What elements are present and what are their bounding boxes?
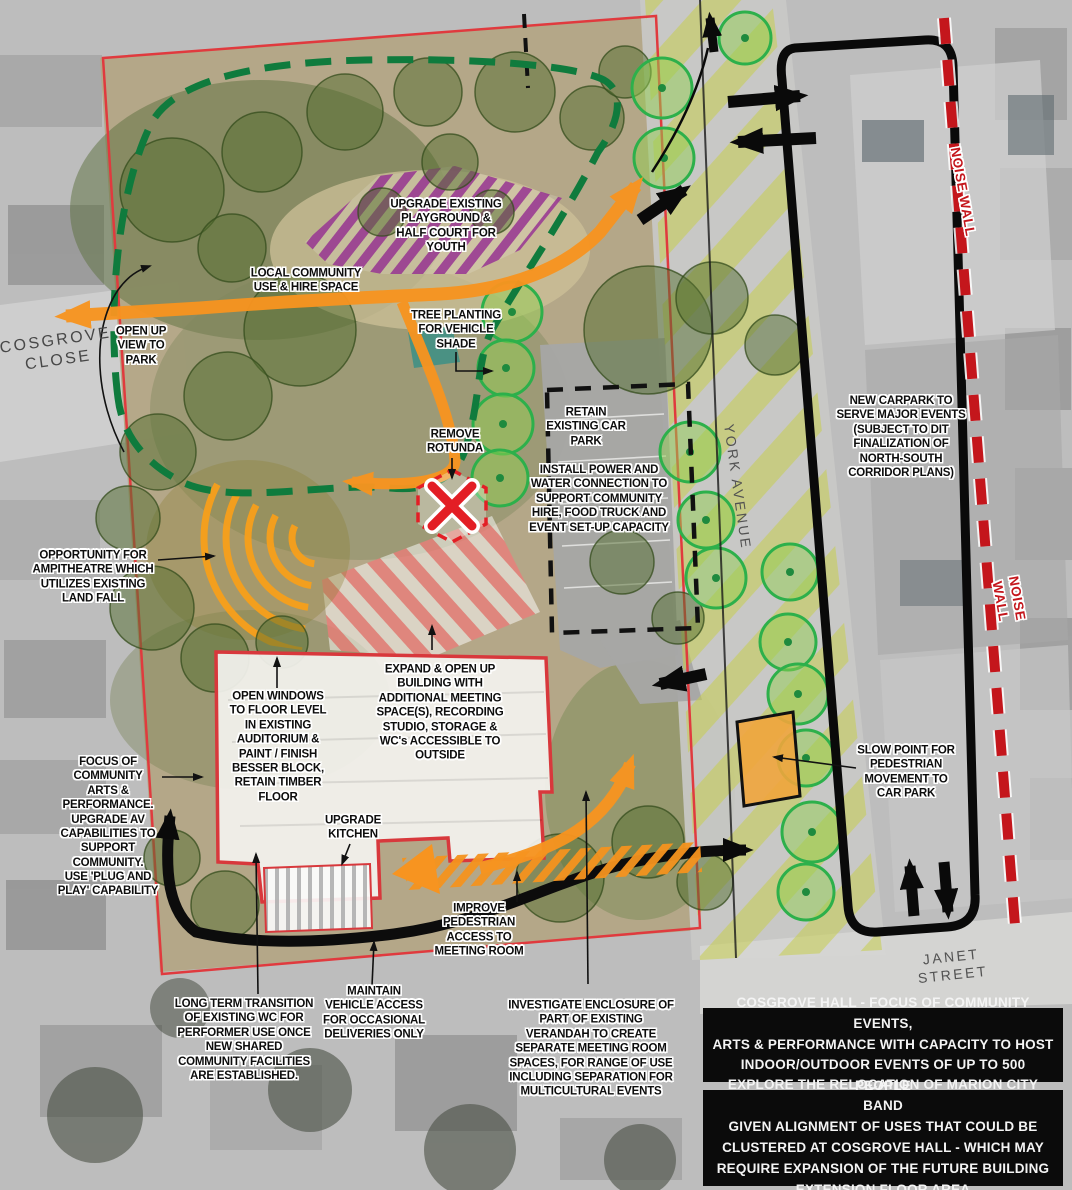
label-improve-pedestrian: IMPROVE PEDESTRIAN ACCESS TO MEETING ROO… — [435, 901, 524, 959]
label-upgrade-kitchen: UPGRADE KITCHEN — [325, 814, 381, 843]
label-long-term-wc: LONG TERM TRANSITION OF EXISTING WC FOR … — [175, 997, 313, 1083]
label-open-up-view: OPEN UP VIEW TO PARK — [116, 324, 166, 367]
site-masterplan: UPGRADE EXISTING PLAYGROUND & HALF COURT… — [0, 0, 1072, 1190]
label-focus-arts: FOCUS OF COMMUNITY ARTS & PERFORMANCE. U… — [58, 755, 159, 899]
label-remove-rotunda: REMOVE ROTUNDA — [427, 428, 483, 457]
callout-band-relocation: EXPLORE THE RELOCATION OF MARION CITY BA… — [703, 1090, 1063, 1186]
label-playground-upgrade: UPGRADE EXISTING PLAYGROUND & HALF COURT… — [390, 197, 501, 255]
label-local-community: LOCAL COMMUNITY USE & HIRE SPACE — [251, 267, 362, 296]
label-maintain-vehicle: MAINTAIN VEHICLE ACCESS FOR OCCASIONAL D… — [323, 984, 425, 1042]
remove-rotunda-marker — [418, 470, 486, 542]
label-expand-building: EXPAND & OPEN UP BUILDING WITH ADDITIONA… — [377, 663, 504, 764]
callout-hall-capacity: COSGROVE HALL - FOCUS OF COMMUNITY EVENT… — [703, 1008, 1063, 1082]
label-tree-planting: TREE PLANTING FOR VEHICLE SHADE — [411, 308, 501, 351]
label-retain-carpark: RETAIN EXISTING CAR PARK — [546, 405, 625, 448]
label-open-windows: OPEN WINDOWS TO FLOOR LEVEL IN EXISTING … — [230, 690, 327, 805]
verandah-roof — [264, 864, 372, 932]
label-new-carpark: NEW CARPARK TO SERVE MAJOR EVENTS (SUBJE… — [836, 394, 965, 480]
label-investigate-verandah: INVESTIGATE ENCLOSURE OF PART OF EXISTIN… — [508, 999, 674, 1100]
label-install-power: INSTALL POWER AND WATER CONNECTION TO SU… — [529, 463, 669, 535]
label-slow-point: SLOW POINT FOR PEDESTRIAN MOVEMENT TO CA… — [857, 743, 955, 801]
label-amphitheatre: OPPORTUNITY FOR AMPITHEATRE WHICH UTILIZ… — [33, 548, 154, 606]
